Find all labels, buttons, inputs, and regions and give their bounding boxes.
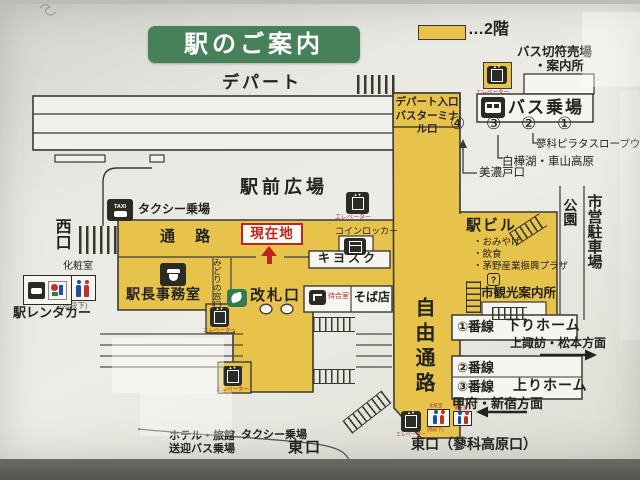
ticket-gate-label: 改札口 <box>250 288 301 305</box>
up-home-label: 上りホーム <box>513 378 588 393</box>
crosswalk-north <box>357 75 395 94</box>
elevator-icon-east <box>401 411 421 432</box>
tourist-info-label: 市観光案内所 <box>481 287 556 301</box>
sign-title: 駅のご案内 <box>148 26 360 63</box>
elevator-icon-overpass1 <box>210 307 229 327</box>
bus-ticket-office-label: バス切符売場・案内所 <box>517 46 592 74</box>
tape-patch <box>620 90 640 340</box>
elevator-label-plaza: エレベーター <box>335 215 371 222</box>
ekibiru-item-3: ・茅野産業振興プラザ <box>473 262 568 272</box>
elevator-label-bus: エレベーター <box>476 90 509 96</box>
gate-left <box>260 304 272 314</box>
taxi-label-north: タクシー乗場 <box>138 203 210 216</box>
rent-a-car-label: 駅レンタカー <box>13 306 91 320</box>
ekibiru-label: 駅ビル <box>466 218 517 235</box>
elevator-tile-bus <box>483 62 512 89</box>
elevator-label-overpass1: エレベーター <box>203 328 236 334</box>
bus-stop-label: バス乗場 <box>508 99 584 118</box>
department-store-building <box>33 96 405 150</box>
ekibiru-item-2: ・飲食 <box>473 250 502 260</box>
midori-window-icon <box>227 289 247 307</box>
elevator-icon-plaza <box>346 192 369 214</box>
department-store-label: デパート <box>222 74 302 93</box>
ekibiru-item-1: ・おみやげ <box>473 238 521 248</box>
west-exit-label: 西口 <box>52 218 70 260</box>
crosswalk-west <box>79 226 118 254</box>
bus-bay-3: ③ <box>486 115 501 134</box>
plaza-label: 駅前広場 <box>240 178 328 198</box>
bus-bay-4: ④ <box>450 115 465 134</box>
you-are-here-badge: 現在地 <box>241 223 303 245</box>
platform3-label: ③番線 <box>457 380 494 394</box>
park-label: 公園 <box>562 198 577 244</box>
restroom-icon-east: 化粧室 (階段下) <box>427 405 451 435</box>
passage-label: 通 路 <box>160 229 218 246</box>
station-guide-photo: 駅のご案内 …2階 デパート 駅前広場 西口 TAXI タクシー乗場 エレベータ… <box>0 0 640 480</box>
bus-bay-2: ② <box>521 115 536 134</box>
down-home-label: 下りホーム <box>506 318 581 333</box>
gate-right <box>281 304 293 314</box>
stationmaster-label: 駅長事務室 <box>126 287 201 302</box>
bus-bay-1: ① <box>557 115 572 134</box>
platform1-label: ①番線 <box>457 320 494 334</box>
restroom-icon-west <box>69 275 96 301</box>
question-icon: ? <box>487 273 500 286</box>
midori-window-label: みどりの窓口 <box>212 258 221 306</box>
legend-label: …2階 <box>468 21 509 39</box>
legend-swatch <box>418 25 466 40</box>
waiting-room-icon <box>309 290 326 305</box>
coin-locker-label: コインロッカー <box>335 227 398 237</box>
stairs-platform23 <box>313 369 355 384</box>
tape-patch <box>112 338 224 393</box>
soba-label: そば店 <box>354 291 390 304</box>
rent-a-car-icon <box>23 275 72 305</box>
waiting-room-label: 待合室 <box>328 293 349 301</box>
city-parking-label: 市営駐車場 <box>585 194 602 319</box>
stairs-platform1 <box>313 317 355 332</box>
free-passage-label: 自由通路 <box>412 297 434 407</box>
minotoguchi-label: 美濃戸口 <box>479 167 525 180</box>
platform2-label: ②番線 <box>457 361 494 375</box>
taxi-icon: TAXI <box>107 199 133 221</box>
stairs-station-building <box>466 281 481 313</box>
tape-patch <box>582 12 640 87</box>
tape-patch <box>140 392 232 436</box>
elevator-icon-overpass2 <box>223 366 242 386</box>
restroom-icon-platform: 化粧室 <box>453 407 473 427</box>
kiosk-label: キヨスク <box>318 252 378 265</box>
east-exit-full-label: 東口（蓼科高原口） <box>411 437 537 452</box>
down-direction-label: 上諏訪・松本方面 <box>510 337 606 350</box>
photo-background-edge <box>0 459 640 480</box>
stationmaster-icon <box>160 263 186 286</box>
arrow-right <box>585 350 597 361</box>
restroom-label-west: 化粧室 <box>63 261 93 272</box>
east-exit-label: 東口 <box>288 440 322 457</box>
